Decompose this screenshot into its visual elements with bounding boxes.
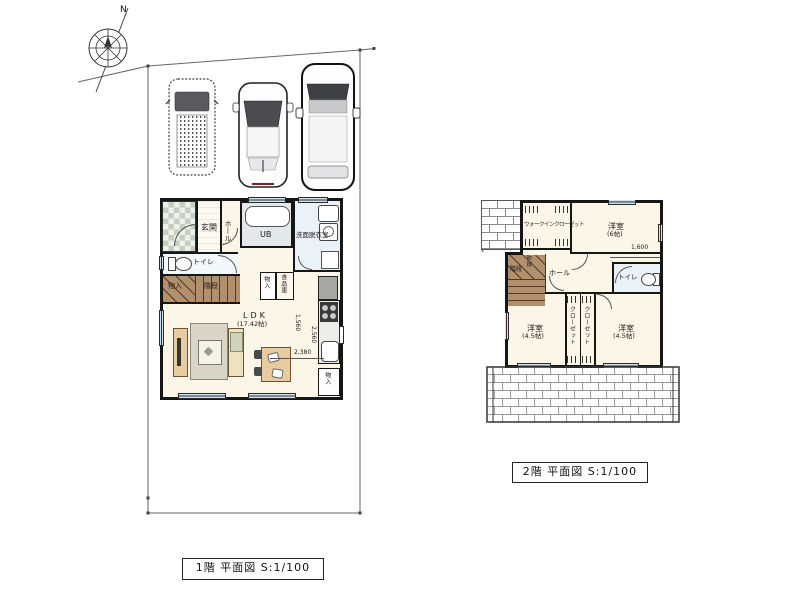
dim-2560: 2,560 bbox=[310, 326, 317, 343]
floor2-caption: 2階 平面図 S:1/100 bbox=[512, 462, 648, 483]
bathtub bbox=[245, 206, 290, 227]
dim-2380: 2,380 bbox=[294, 349, 311, 356]
window bbox=[159, 256, 164, 270]
tv bbox=[177, 338, 181, 366]
window bbox=[178, 393, 226, 399]
void-label: 吹抜 bbox=[525, 255, 531, 267]
window bbox=[658, 224, 663, 242]
hall2-label: ホール bbox=[549, 269, 570, 277]
ldk-label: LDK bbox=[243, 311, 268, 320]
hanger-pipe bbox=[567, 296, 578, 303]
hanger-pipe bbox=[555, 206, 568, 213]
balcony bbox=[486, 366, 680, 426]
window bbox=[298, 197, 328, 203]
bed45r-size-label: (4.5帖) bbox=[613, 333, 635, 340]
pantry-label: 食品庫 bbox=[279, 274, 286, 294]
car-suv bbox=[296, 64, 360, 190]
dim-line bbox=[610, 257, 660, 258]
stairs2-label: 階段 bbox=[510, 267, 522, 274]
stairs2-run bbox=[508, 279, 545, 306]
hanger-pipe bbox=[582, 296, 593, 303]
ub-label: UB bbox=[260, 230, 271, 239]
car-sedan bbox=[233, 83, 293, 187]
kitchen-door bbox=[339, 326, 344, 344]
hanger-pipe bbox=[525, 239, 538, 246]
stairs-label: 階段 bbox=[204, 282, 218, 290]
window bbox=[248, 197, 286, 203]
toilet2-bowl bbox=[641, 273, 656, 286]
hanger-pipe bbox=[582, 356, 593, 363]
toilet2-label: トイレ bbox=[618, 274, 638, 281]
hanger-pipe bbox=[525, 206, 538, 213]
window bbox=[159, 310, 164, 346]
compass: N bbox=[89, 5, 128, 92]
dining-chair bbox=[254, 350, 262, 359]
wall bbox=[565, 294, 567, 365]
wall bbox=[594, 294, 596, 365]
wall bbox=[196, 201, 198, 252]
stove bbox=[320, 302, 338, 322]
dim-1600: 1,600 bbox=[631, 244, 648, 251]
toilet-bowl bbox=[175, 257, 192, 271]
refrigerator bbox=[318, 276, 338, 300]
floor2-building: ウォークインクローゼット 洋室 (6帖) 階段 吹抜 ホール トイレ クローゼッ… bbox=[505, 200, 663, 368]
storage-kitchen-label: 物入 bbox=[323, 372, 330, 385]
wall bbox=[545, 254, 546, 292]
senmen-label: 洗面脱衣室 bbox=[296, 232, 329, 239]
dim-line bbox=[270, 358, 324, 359]
washbasin bbox=[318, 205, 339, 222]
storage-mid-label: 物入 bbox=[262, 276, 269, 289]
sofa-cushion bbox=[230, 332, 243, 352]
hanger-pipe bbox=[555, 239, 568, 246]
hall-label: ホール bbox=[224, 220, 232, 243]
closet-l-label: クローゼット bbox=[568, 306, 575, 345]
roof-hatch bbox=[481, 200, 521, 252]
bed6-size-label: (6帖) bbox=[607, 231, 623, 238]
car-van bbox=[166, 79, 218, 175]
wall bbox=[580, 294, 582, 365]
dining-chair bbox=[254, 367, 262, 376]
genkan-label: 玄関 bbox=[201, 223, 217, 232]
wall bbox=[163, 302, 240, 304]
dining-item bbox=[271, 368, 283, 379]
floor1-building: 玄関 ホール UB 洗面脱衣室 トイレ 物入 階段 LDK (17.42帖) 物… bbox=[160, 198, 343, 400]
compass-n-label: N bbox=[120, 5, 127, 15]
window bbox=[248, 393, 296, 399]
floorplan-canvas: N bbox=[0, 0, 800, 600]
toilet-label: トイレ bbox=[193, 258, 214, 266]
closet-r-label: クローゼット bbox=[582, 306, 589, 345]
site-plan: N bbox=[0, 0, 800, 600]
floor1-caption: 1階 平面図 S:1/100 bbox=[182, 558, 324, 580]
wall bbox=[293, 270, 340, 272]
dim-1560: 1,560 bbox=[294, 314, 301, 331]
bed45l-size-label: (4.5帖) bbox=[522, 333, 544, 340]
wall bbox=[523, 248, 572, 250]
ldk-size-label: (17.42帖) bbox=[237, 321, 267, 328]
laundry-space bbox=[321, 251, 339, 269]
hanger-pipe bbox=[567, 356, 578, 363]
storage-stairs-label: 物入 bbox=[168, 282, 182, 290]
wic-label: ウォークインクローゼット bbox=[524, 222, 584, 228]
